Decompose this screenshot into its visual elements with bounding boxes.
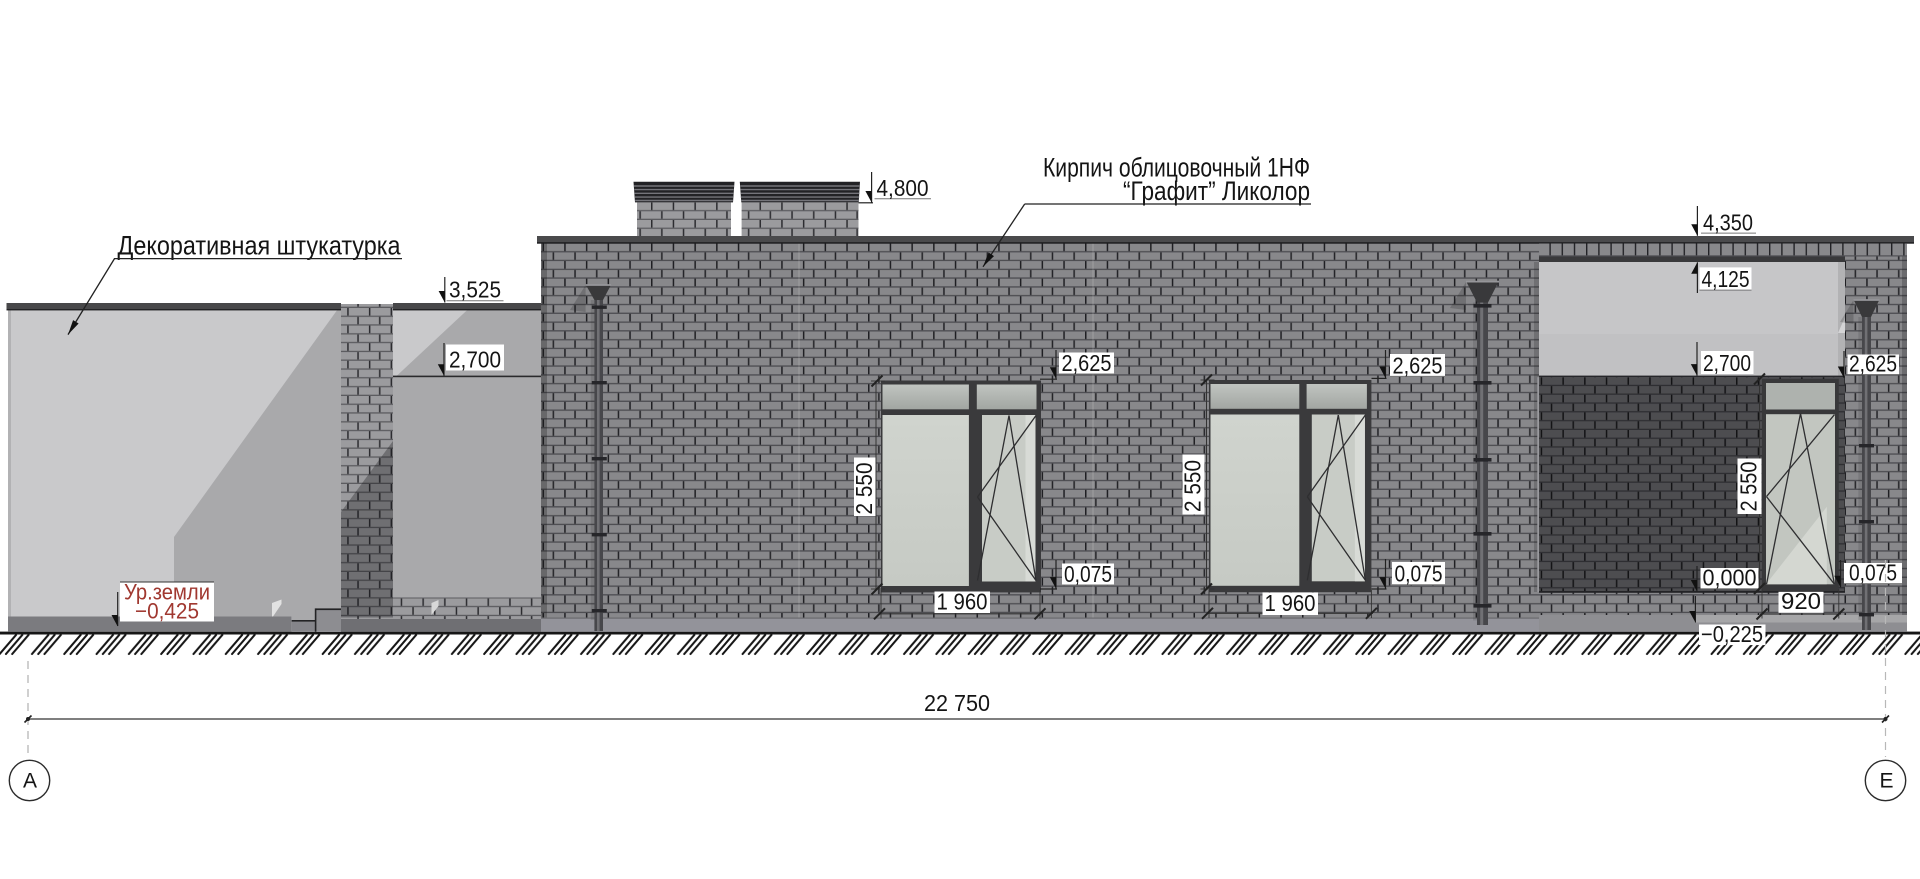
svg-text:2 550: 2 550: [851, 463, 877, 515]
svg-text:Е: Е: [1880, 770, 1894, 793]
svg-text:2,700: 2,700: [1703, 350, 1751, 376]
svg-text:1 960: 1 960: [1265, 590, 1316, 616]
svg-text:А: А: [23, 770, 37, 793]
svg-text:0,075: 0,075: [1064, 561, 1112, 587]
svg-text:0,000: 0,000: [1703, 565, 1757, 591]
svg-text:2 550: 2 550: [1180, 460, 1206, 512]
svg-text:−0,425: −0,425: [135, 599, 199, 624]
svg-text:“Графит” Ликолор: “Графит” Ликолор: [1123, 176, 1310, 206]
svg-text:Декоративная штукатурка: Декоративная штукатурка: [118, 231, 402, 261]
svg-text:2 550: 2 550: [1736, 462, 1762, 512]
svg-text:−0,225: −0,225: [1701, 621, 1763, 647]
svg-text:0,075: 0,075: [1849, 560, 1897, 586]
svg-text:920: 920: [1781, 588, 1821, 614]
svg-text:4,800: 4,800: [877, 175, 929, 201]
svg-text:2,625: 2,625: [1062, 350, 1112, 376]
svg-text:2,700: 2,700: [449, 347, 501, 373]
svg-text:1 960: 1 960: [937, 589, 988, 615]
svg-text:22 750: 22 750: [924, 690, 990, 716]
svg-text:3,525: 3,525: [449, 277, 501, 303]
svg-text:4,350: 4,350: [1703, 210, 1753, 236]
svg-text:2,625: 2,625: [1393, 352, 1443, 378]
svg-text:4,125: 4,125: [1702, 266, 1750, 292]
svg-text:0,075: 0,075: [1395, 561, 1443, 587]
svg-text:2,625: 2,625: [1849, 351, 1897, 377]
